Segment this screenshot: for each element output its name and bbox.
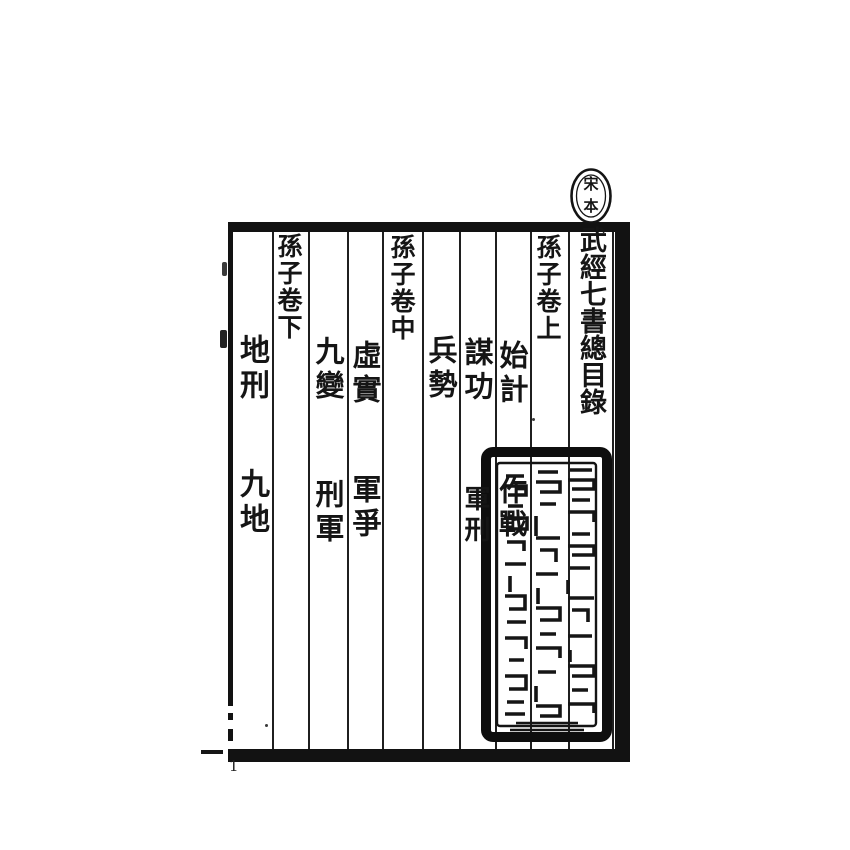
vol-shang-heading: 孫子卷上: [535, 234, 560, 342]
entry-mougong: 謀功: [462, 337, 491, 405]
page-number: 1: [229, 757, 239, 775]
border-break: [228, 706, 233, 713]
margin-dash-mark: [201, 750, 223, 754]
column-rule: [382, 232, 384, 749]
vol-xia-heading: 孫子卷下: [276, 233, 301, 341]
seal-char-ben: 本: [583, 197, 598, 215]
column-rule: [422, 232, 424, 749]
vol-zhong-heading: 孫子卷中: [389, 234, 414, 342]
ink-smudge: [220, 330, 227, 348]
entry-shiji: 始計: [497, 340, 526, 408]
entry-jiubian: 九變: [313, 336, 342, 404]
entry-jiudi: 九地: [236, 468, 266, 538]
entry-junzheng: 軍爭: [350, 474, 379, 542]
ink-smudge: [222, 262, 227, 276]
entry-bingshi: 兵勢: [426, 335, 455, 403]
entry-zuozhan: 作戰: [497, 476, 525, 542]
song-edition-oval-seal: 宋 本: [569, 168, 613, 224]
toc-title: 武經七書總目錄: [577, 226, 604, 415]
ink-speck: [265, 724, 268, 727]
ink-speck: [532, 418, 535, 421]
border-break: [228, 741, 233, 749]
border-break: [228, 720, 233, 729]
entry-dixing: 地刑: [236, 334, 266, 404]
scanned-book-page: 宋 本 武經七書總目錄 孫子卷上 始計 謀功 兵勢 作戰 軍刑 孫子卷中 虛實 …: [0, 0, 850, 850]
column-rule: [308, 232, 310, 749]
entry-junxing: 軍刑: [462, 485, 488, 547]
seal-char-song: 宋: [582, 175, 599, 193]
entry-xushi: 虛實: [350, 340, 379, 408]
entry-xingjun: 刑軍: [313, 479, 342, 547]
